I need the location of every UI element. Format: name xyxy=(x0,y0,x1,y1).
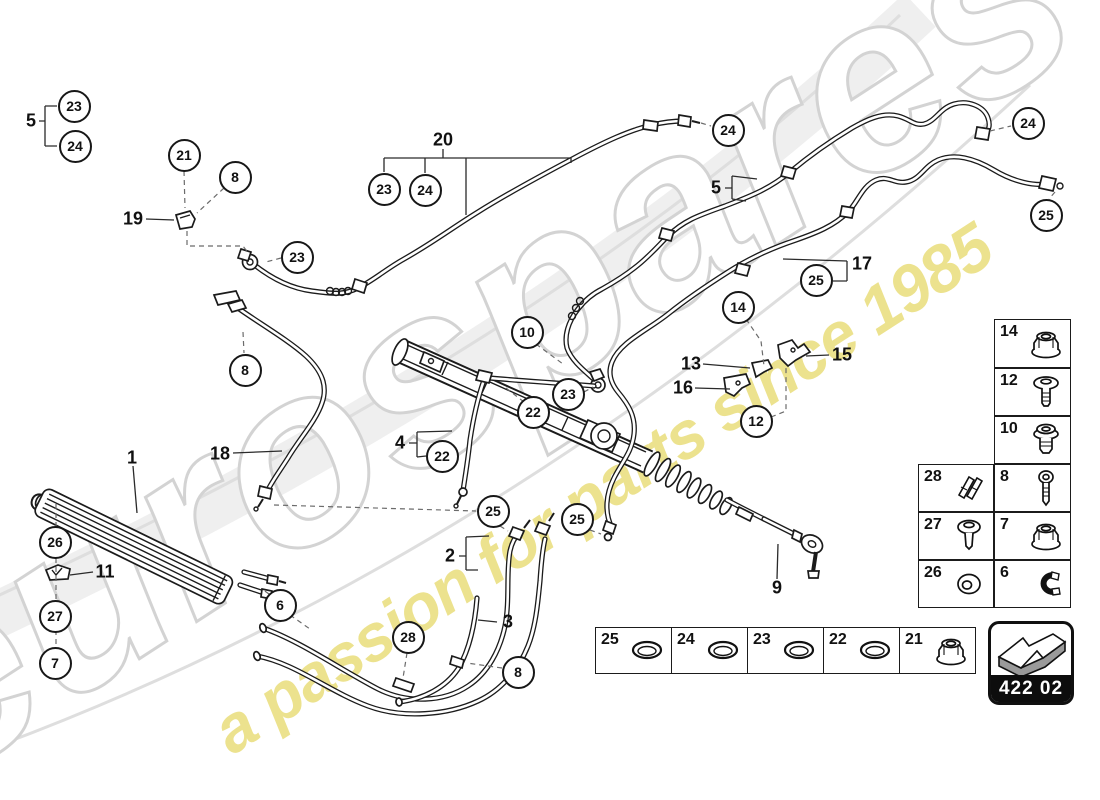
dome-screw-icon xyxy=(947,513,991,559)
callout-circle-22[interactable]: 22 xyxy=(517,396,550,429)
legend-part-number: 27 xyxy=(924,516,942,534)
callout-circle-6[interactable]: 6 xyxy=(264,589,297,622)
callout-circle-21[interactable]: 21 xyxy=(168,139,201,172)
callout-circle-23[interactable]: 23 xyxy=(281,241,314,274)
washer-icon xyxy=(947,561,991,607)
callout-circle-22[interactable]: 22 xyxy=(426,440,459,473)
legend-part-number: 10 xyxy=(1000,420,1018,438)
flange-nut-icon xyxy=(1024,321,1068,367)
callout-circle-10[interactable]: 10 xyxy=(511,316,544,349)
arrow-icon xyxy=(991,624,1074,678)
seal-ring-icon xyxy=(701,628,745,674)
callout-label-5[interactable]: 5 xyxy=(26,111,36,132)
callout-circle-8[interactable]: 8 xyxy=(502,656,535,689)
seal-ring-icon xyxy=(853,628,897,674)
legend-bottom-cell-22[interactable]: 22 xyxy=(823,627,900,674)
callout-circle-23[interactable]: 23 xyxy=(552,378,585,411)
legend-part-number: 28 xyxy=(924,468,942,486)
callout-label-20[interactable]: 20 xyxy=(433,130,453,151)
screw-icon xyxy=(1024,465,1068,511)
legend-right-cell-6[interactable]: 6 xyxy=(994,560,1071,608)
legend-part-number: 23 xyxy=(753,631,771,649)
legend-part-number: 8 xyxy=(1000,468,1009,486)
legend-bottom-cell-25[interactable]: 25 xyxy=(595,627,672,674)
callout-label-3[interactable]: 3 xyxy=(503,612,513,633)
callout-label-15[interactable]: 15 xyxy=(832,345,852,366)
callout-circle-23[interactable]: 23 xyxy=(368,173,401,206)
legend-part-number: 14 xyxy=(1000,323,1018,341)
callout-circle-24[interactable]: 24 xyxy=(1012,107,1045,140)
legend-bottom-cell-21[interactable]: 21 xyxy=(899,627,976,674)
callout-circle-27[interactable]: 27 xyxy=(39,600,72,633)
legend-part-number: 12 xyxy=(1000,372,1018,390)
part-code-box[interactable]: 422 02 xyxy=(988,621,1074,705)
callout-label-17[interactable]: 17 xyxy=(852,254,872,275)
clamp-icon xyxy=(1024,561,1068,607)
clip-19 xyxy=(176,211,195,229)
seal-ring-icon xyxy=(777,628,821,674)
legend-part-number: 6 xyxy=(1000,564,1009,582)
callout-label-13[interactable]: 13 xyxy=(681,354,701,375)
callout-circle-23[interactable]: 23 xyxy=(58,90,91,123)
callout-circle-25[interactable]: 25 xyxy=(477,495,510,528)
legend-part-number: 26 xyxy=(924,564,942,582)
callout-label-16[interactable]: 16 xyxy=(673,378,693,399)
legend-part-number: 24 xyxy=(677,631,695,649)
parts-diagram-page: eurospares a passion for parts since 198… xyxy=(0,0,1100,800)
spring-clip-icon xyxy=(947,465,991,511)
legend-right-cell-14[interactable]: 14 xyxy=(994,319,1071,368)
legend-right-cell-28[interactable]: 28 xyxy=(918,464,994,512)
legend-bottom-cell-24[interactable]: 24 xyxy=(671,627,748,674)
callout-label-9[interactable]: 9 xyxy=(772,578,782,599)
legend-right-cell-26[interactable]: 26 xyxy=(918,560,994,608)
legend-part-number: 25 xyxy=(601,631,619,649)
callout-label-18[interactable]: 18 xyxy=(210,444,230,465)
callout-label-11[interactable]: 11 xyxy=(95,562,114,583)
callout-circle-8[interactable]: 8 xyxy=(229,354,262,387)
diagram-canvas: eurospares a passion for parts since 198… xyxy=(0,0,1100,800)
legend-right-cell-27[interactable]: 27 xyxy=(918,512,994,560)
callout-circle-25[interactable]: 25 xyxy=(1030,199,1063,232)
flange-nut-icon xyxy=(929,628,973,674)
callout-circle-24[interactable]: 24 xyxy=(59,130,92,163)
legend-right-cell-10[interactable]: 10 xyxy=(994,416,1071,464)
legend-part-number: 22 xyxy=(829,631,847,649)
callout-label-1[interactable]: 1 xyxy=(127,448,137,469)
legend-bottom-cell-23[interactable]: 23 xyxy=(747,627,824,674)
legend-right-cell-12[interactable]: 12 xyxy=(994,368,1071,416)
callout-label-2[interactable]: 2 xyxy=(445,546,455,567)
legend-part-number: 7 xyxy=(1000,516,1009,534)
callout-circle-25[interactable]: 25 xyxy=(561,503,594,536)
part-code-label: 422 02 xyxy=(991,675,1071,702)
callout-circle-14[interactable]: 14 xyxy=(722,291,755,324)
legend-right-cell-8[interactable]: 8 xyxy=(994,464,1071,512)
callout-circle-25[interactable]: 25 xyxy=(800,264,833,297)
callout-circle-12[interactable]: 12 xyxy=(740,405,773,438)
callout-circle-28[interactable]: 28 xyxy=(392,621,425,654)
tie-rod xyxy=(727,500,826,578)
flange-bolt-icon xyxy=(1024,417,1068,463)
callout-label-5[interactable]: 5 xyxy=(711,178,721,199)
seal-ring-icon xyxy=(625,628,669,674)
legend-right-cell-7[interactable]: 7 xyxy=(994,512,1071,560)
callout-circle-24[interactable]: 24 xyxy=(712,114,745,147)
callout-circle-8[interactable]: 8 xyxy=(219,161,252,194)
callout-label-4[interactable]: 4 xyxy=(395,433,405,454)
callout-circle-7[interactable]: 7 xyxy=(39,647,72,680)
callout-circle-24[interactable]: 24 xyxy=(409,174,442,207)
flange-nut-icon xyxy=(1024,513,1068,559)
callout-circle-26[interactable]: 26 xyxy=(39,526,72,559)
callout-label-19[interactable]: 19 xyxy=(123,209,143,230)
washer-screw-icon xyxy=(1024,369,1068,415)
legend-part-number: 21 xyxy=(905,631,923,649)
